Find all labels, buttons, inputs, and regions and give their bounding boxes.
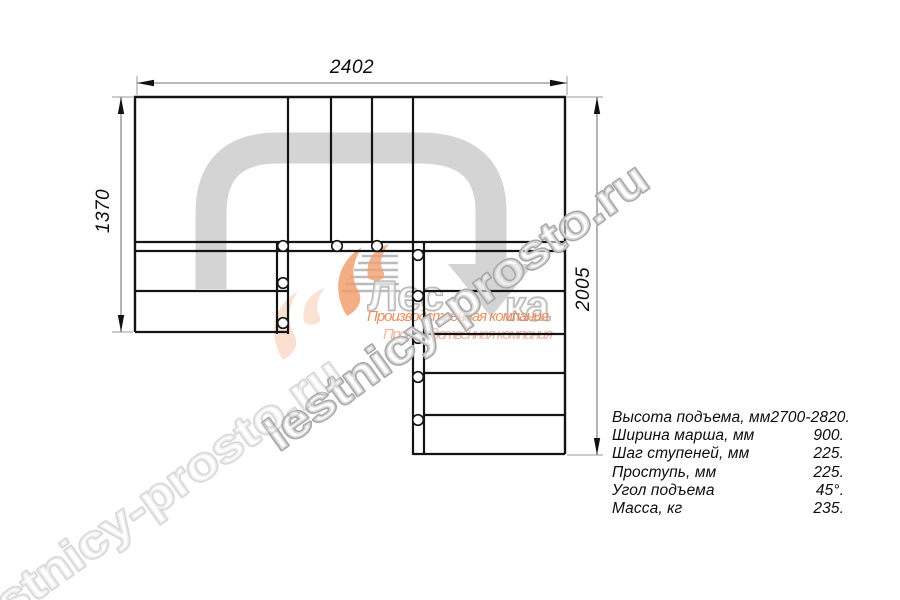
dim-width-label: 2402 [329,57,374,78]
spec-value: 225. [813,445,844,463]
spec-value: 45°. [816,482,844,500]
spec-value: 235. [813,500,844,518]
spec-label: Высота подъема, мм [612,409,770,427]
specs-table: Высота подъема, мм 2700-2820. Ширина мар… [612,409,844,518]
spec-value: 900. [813,427,844,445]
spec-value: 2700-2820. [770,409,849,427]
dim-left-height-label: 1370 [93,189,114,233]
spec-value: 225. [813,464,844,482]
dim-right-height-label: 2005 [573,267,594,312]
spec-label: Проступь, мм [612,464,716,482]
spec-row-angle: Угол подъема 45°. [612,482,844,500]
spec-label: Шаг ступеней, мм [612,445,749,463]
spec-label: Ширина марша, мм [612,427,754,445]
spec-row-tread: Проступь, мм 225. [612,464,844,482]
spec-row-mass: Масса, кг 235. [612,500,844,518]
stair-plan-page: Лес ка Производственная компания Произво… [0,0,900,600]
plan-left-flight-steps [135,291,289,332]
spec-label: Угол подъема [612,482,715,500]
spec-label: Масса, кг [612,500,682,518]
site-watermark-text-ghost: lestnicy-prosto.ru [0,346,352,600]
spec-row-step-pitch: Шаг ступеней, мм 225. [612,445,844,463]
spec-row-height: Высота подъема, мм 2700-2820. [612,409,844,427]
spec-row-flight-width: Ширина марша, мм 900. [612,427,844,445]
